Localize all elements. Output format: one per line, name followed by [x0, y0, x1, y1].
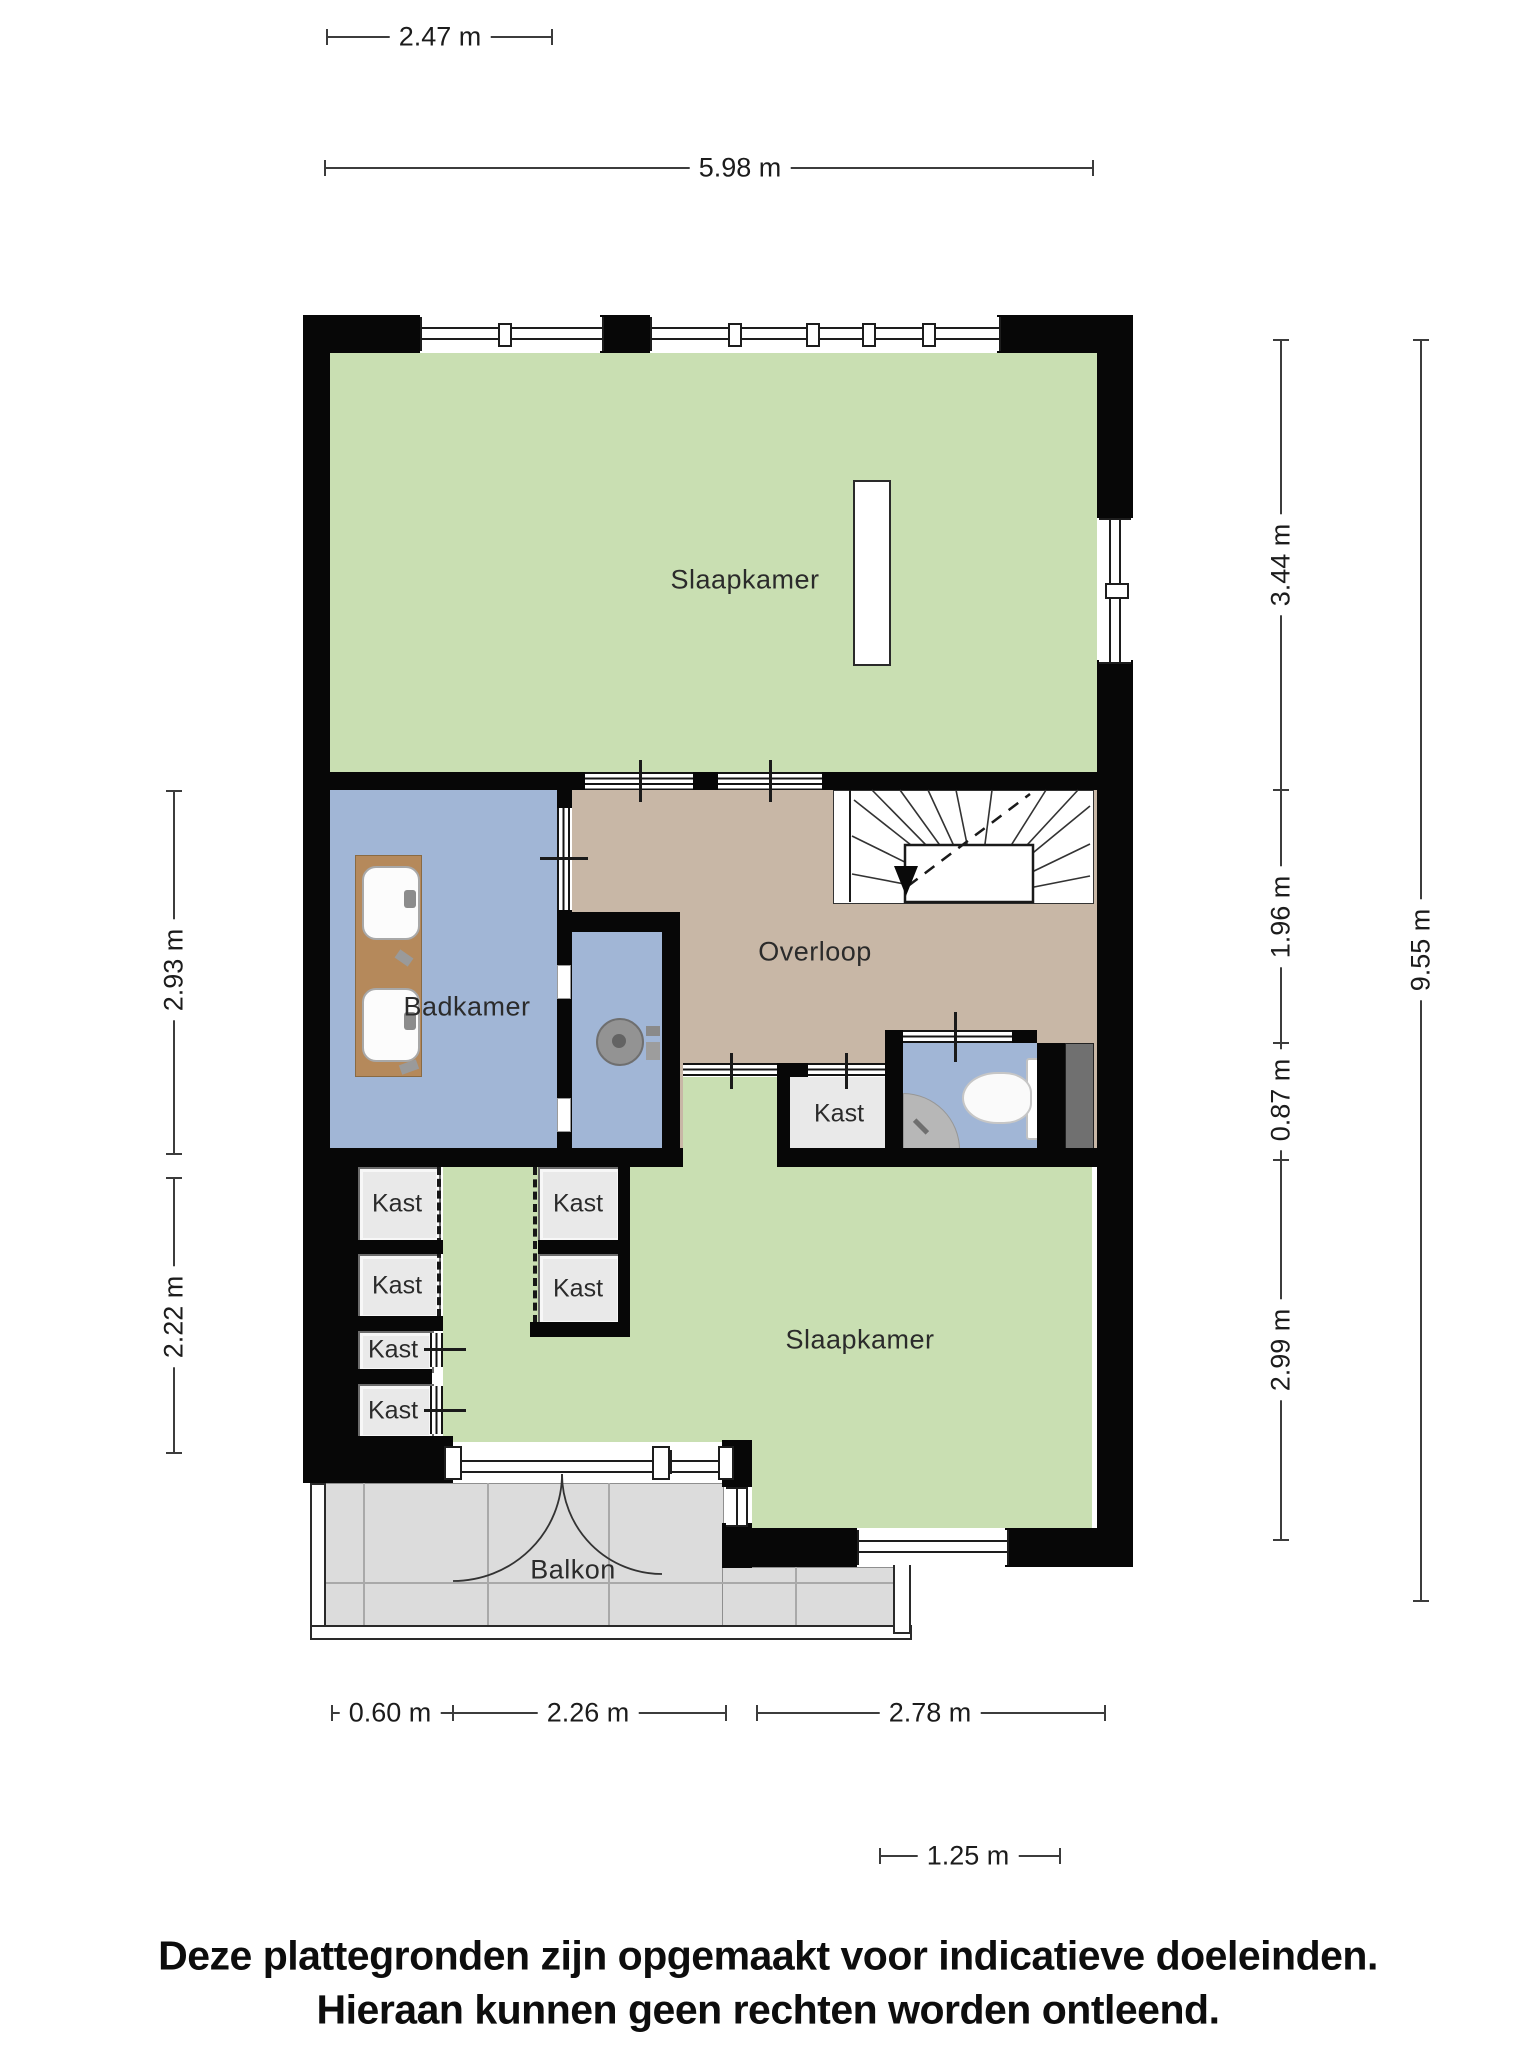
door-post [718, 1446, 734, 1480]
dimension-label: 2.93 m [159, 920, 190, 1021]
wall [1005, 1528, 1097, 1567]
room-label-closet: Kast [368, 1336, 418, 1365]
wall [538, 1240, 630, 1254]
dimension-label: 2.26 m [538, 1698, 639, 1729]
wall [330, 1316, 443, 1331]
door-post [652, 1446, 670, 1480]
dimension-tick [1273, 789, 1289, 791]
balcony-tile-line [795, 1567, 797, 1627]
wall [330, 772, 585, 790]
disclaimer-line-2: Hieraan kunnen geen rechten worden ontle… [0, 1987, 1536, 2034]
wall [530, 1322, 630, 1337]
room-label-landing: Overloop [758, 937, 872, 968]
window-mullion [806, 323, 820, 347]
wall [330, 1240, 443, 1254]
window-mullion [1105, 583, 1129, 599]
wall [822, 772, 1097, 790]
opening-tick [954, 1012, 957, 1062]
shower-tap-icon [646, 1042, 660, 1060]
room-label-closet: Kast [553, 1190, 603, 1219]
door-post [444, 1446, 462, 1480]
room-label-closet: Kast [553, 1275, 603, 1304]
toilet-bowl [962, 1072, 1032, 1124]
wall [303, 315, 420, 353]
window-mullion [922, 323, 936, 347]
wall [885, 1030, 903, 1167]
dimension-tick [1059, 1848, 1061, 1864]
room-label-closet: Kast [368, 1397, 418, 1426]
dimension-label: 0.87 m [1266, 1050, 1297, 1151]
wall [777, 1063, 790, 1167]
dimension-label: 2.47 m [390, 22, 491, 53]
wall [600, 315, 650, 353]
balcony-railing-bottom [310, 1625, 912, 1640]
dimension-tick [1273, 1159, 1289, 1161]
opening-tick [540, 857, 588, 860]
room-label-bedroom-top: Slaapkamer [670, 565, 819, 596]
dimension-tick [326, 29, 328, 45]
door-panel [557, 1098, 571, 1132]
dimension-tick [166, 1452, 182, 1454]
room-bedroom-bottom-entry [683, 1077, 777, 1167]
dimension-tick [166, 1153, 182, 1155]
dimension-label: 5.98 m [690, 153, 791, 184]
wall [330, 1436, 453, 1460]
dimension-label: 2.22 m [159, 1267, 190, 1368]
window-mullion [862, 323, 876, 347]
balcony-floor [320, 1483, 724, 1629]
dimension-label: 2.99 m [1266, 1300, 1297, 1401]
dimension-tick [166, 790, 182, 792]
dimension-tick [1413, 339, 1429, 341]
dimension-label: 9.55 m [1406, 900, 1437, 1001]
dimension-label: 0.60 m [340, 1698, 441, 1729]
window-mullion [498, 323, 512, 347]
dimension-tick [1092, 160, 1094, 176]
dimension-tick [1273, 339, 1289, 341]
dimension-tick [1413, 1600, 1429, 1602]
stairs [833, 790, 1094, 904]
window [726, 1487, 748, 1527]
wall-niche [853, 480, 891, 666]
balcony-railing-right [893, 1560, 911, 1634]
wall [557, 790, 572, 810]
dimension-label: 1.25 m [918, 1841, 1019, 1872]
opening-tick [639, 760, 642, 802]
wall [777, 1063, 808, 1077]
room-label-balcony: Balkon [530, 1555, 616, 1586]
dimension-tick [551, 29, 553, 45]
room-bedroom-top-floor [330, 353, 1097, 772]
opening-tick [845, 1053, 848, 1089]
dimension-label: 3.44 m [1266, 515, 1297, 616]
window-mullion [728, 323, 742, 347]
room-label-bathroom: Badkamer [403, 992, 530, 1023]
wall [722, 1523, 752, 1568]
balcony-door-track [453, 1450, 666, 1474]
dimension-tick [1273, 1539, 1289, 1541]
wall [693, 772, 718, 790]
balcony-tile-line [363, 1483, 365, 1627]
room-label-closet: Kast [814, 1100, 864, 1129]
window [857, 1530, 1009, 1565]
closet-dashed-front [533, 1167, 537, 1323]
dimension-tick [725, 1705, 727, 1721]
window [650, 317, 1001, 351]
room-label-closet: Kast [372, 1272, 422, 1301]
floorplan-page: Slaapkamer Badkamer Overloop Kast Slaapk… [0, 0, 1536, 2048]
wall [303, 1148, 683, 1167]
window [420, 317, 604, 351]
opening-tick [424, 1409, 466, 1412]
shower-drain-center [612, 1034, 626, 1048]
balcony-railing-left [310, 1483, 326, 1640]
wall [330, 1369, 432, 1384]
opening-tick [769, 760, 772, 802]
dimension-tick [166, 1177, 182, 1179]
shower-tap-icon [646, 1026, 660, 1036]
balcony-floor-right [722, 1567, 895, 1629]
toilet-window [903, 1030, 1012, 1043]
wall [777, 1148, 1097, 1167]
wall [1097, 660, 1133, 1567]
room-bedroom-bottom-floor-ext [752, 1442, 1092, 1528]
wall [752, 1528, 857, 1567]
wall [1037, 1043, 1065, 1148]
balcony-tile-line [487, 1483, 489, 1627]
dimension-tick [324, 160, 326, 176]
dimension-tick [879, 1848, 881, 1864]
door-panel [557, 965, 571, 999]
dimension-tick [452, 1705, 454, 1721]
wall [1097, 315, 1133, 518]
dimension-label: 1.96 m [1266, 867, 1297, 968]
opening-tick [730, 1053, 733, 1089]
room-label-closet: Kast [372, 1190, 422, 1219]
room-label-bedroom-bottom: Slaapkamer [785, 1325, 934, 1356]
shaft [1065, 1043, 1094, 1150]
wall [662, 912, 680, 1148]
wall [1012, 1030, 1037, 1043]
faucet-icon [404, 890, 416, 908]
dimension-tick [1273, 1042, 1289, 1044]
disclaimer-line-1: Deze plattegronden zijn opgemaakt voor i… [0, 1933, 1536, 1980]
dimension-label: 2.78 m [880, 1698, 981, 1729]
dimension-tick [756, 1705, 758, 1721]
dimension-tick [1104, 1705, 1106, 1721]
dimension-tick [331, 1705, 333, 1721]
opening-tick [424, 1348, 466, 1351]
